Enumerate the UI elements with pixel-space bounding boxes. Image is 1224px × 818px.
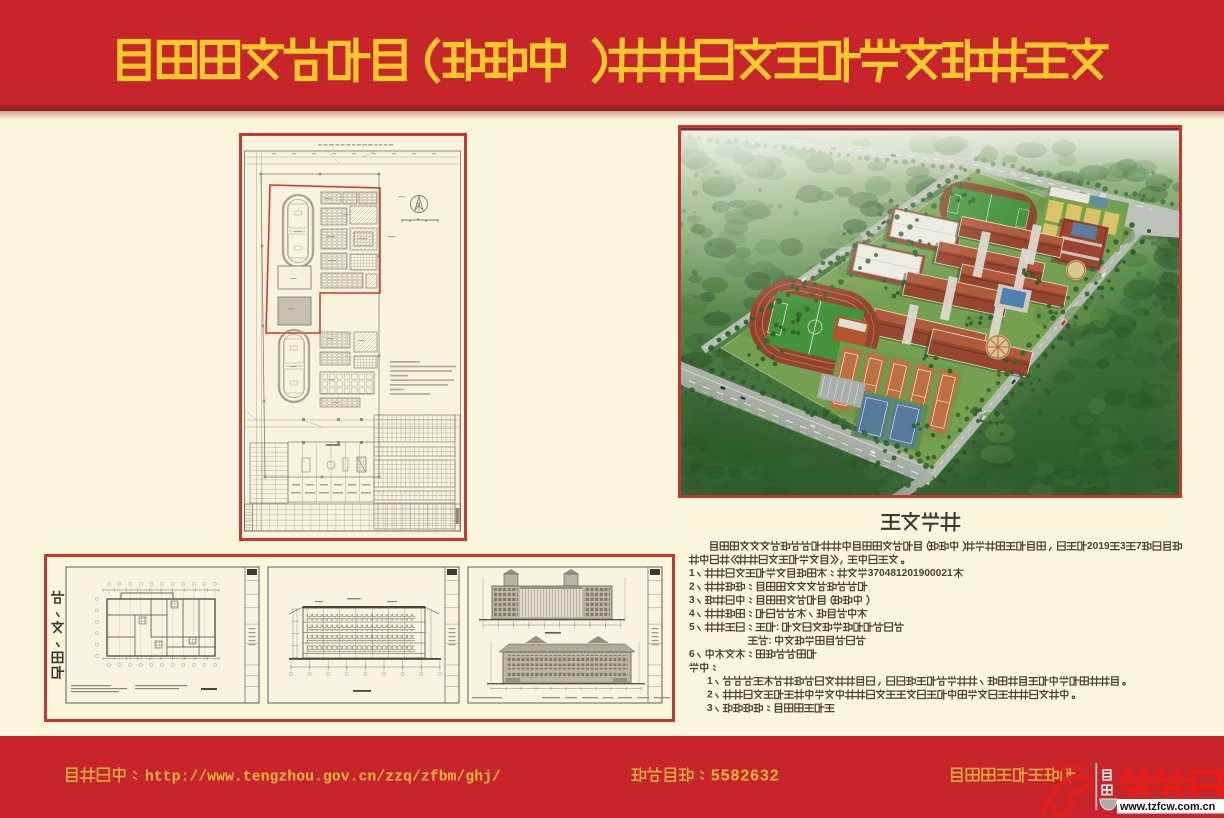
svg-text:http://www.tengzhou.gov.cn/zzq: http://www.tengzhou.gov.cn/zzq/zfbm/ghj/ [145, 770, 501, 786]
svg-text:2: 2 [707, 690, 713, 701]
svg-text:2019: 2019 [1087, 541, 1110, 552]
svg-text:www.tzfcw.com.cn: www.tzfcw.com.cn [1119, 801, 1215, 813]
svg-text:N: N [416, 203, 420, 209]
svg-text:3: 3 [689, 595, 695, 606]
svg-text:370481201900021: 370481201900021 [868, 568, 953, 579]
svg-text:1: 1 [707, 676, 713, 687]
svg-text:5582632: 5582632 [711, 768, 780, 785]
svg-text::: : [776, 622, 779, 633]
svg-text::: : [768, 636, 771, 647]
svg-text:5: 5 [689, 622, 695, 633]
svg-text:3: 3 [1120, 541, 1126, 552]
svg-text:4: 4 [689, 609, 695, 620]
svg-text:2: 2 [689, 582, 695, 593]
svg-text:1: 1 [689, 568, 695, 579]
svg-text:6: 6 [689, 649, 695, 660]
svg-text:3: 3 [707, 703, 713, 714]
svg-text:7: 7 [1136, 541, 1142, 552]
